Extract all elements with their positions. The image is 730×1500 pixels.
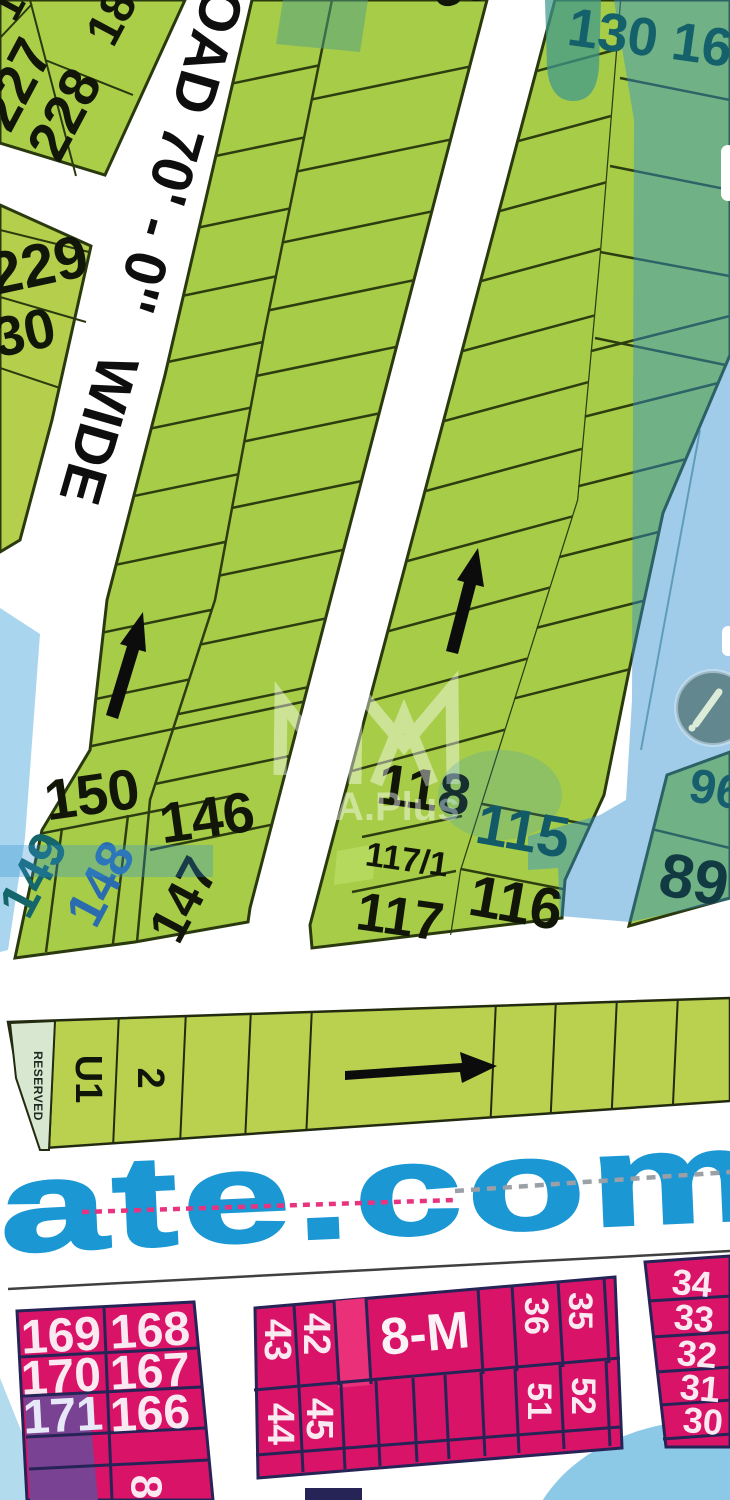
svg-text:89: 89 [654,840,730,920]
svg-text:2: 2 [129,1067,171,1088]
svg-text:146: 146 [155,780,258,857]
svg-text:30: 30 [681,1399,724,1443]
svg-text:166: 166 [109,1385,192,1442]
svg-text:96: 96 [685,759,730,820]
svg-text:16: 16 [668,11,730,79]
svg-text:RESERVED: RESERVED [31,1051,45,1121]
svg-text:171: 171 [22,1387,105,1444]
svg-text:8-M: 8-M [378,1301,472,1367]
svg-text:8: 8 [122,1475,171,1499]
svg-text:52: 52 [564,1377,602,1415]
svg-text:43: 43 [256,1319,298,1361]
svg-text:42: 42 [295,1313,337,1355]
svg-text:150: 150 [40,757,143,834]
svg-text:45: 45 [298,1398,340,1440]
svg-text:35: 35 [561,1292,599,1330]
svg-text:117: 117 [353,881,448,953]
svg-text:U1: U1 [67,1055,109,1104]
svg-text:51: 51 [520,1382,558,1420]
svg-text:44: 44 [259,1403,301,1445]
svg-text:36: 36 [517,1297,555,1335]
